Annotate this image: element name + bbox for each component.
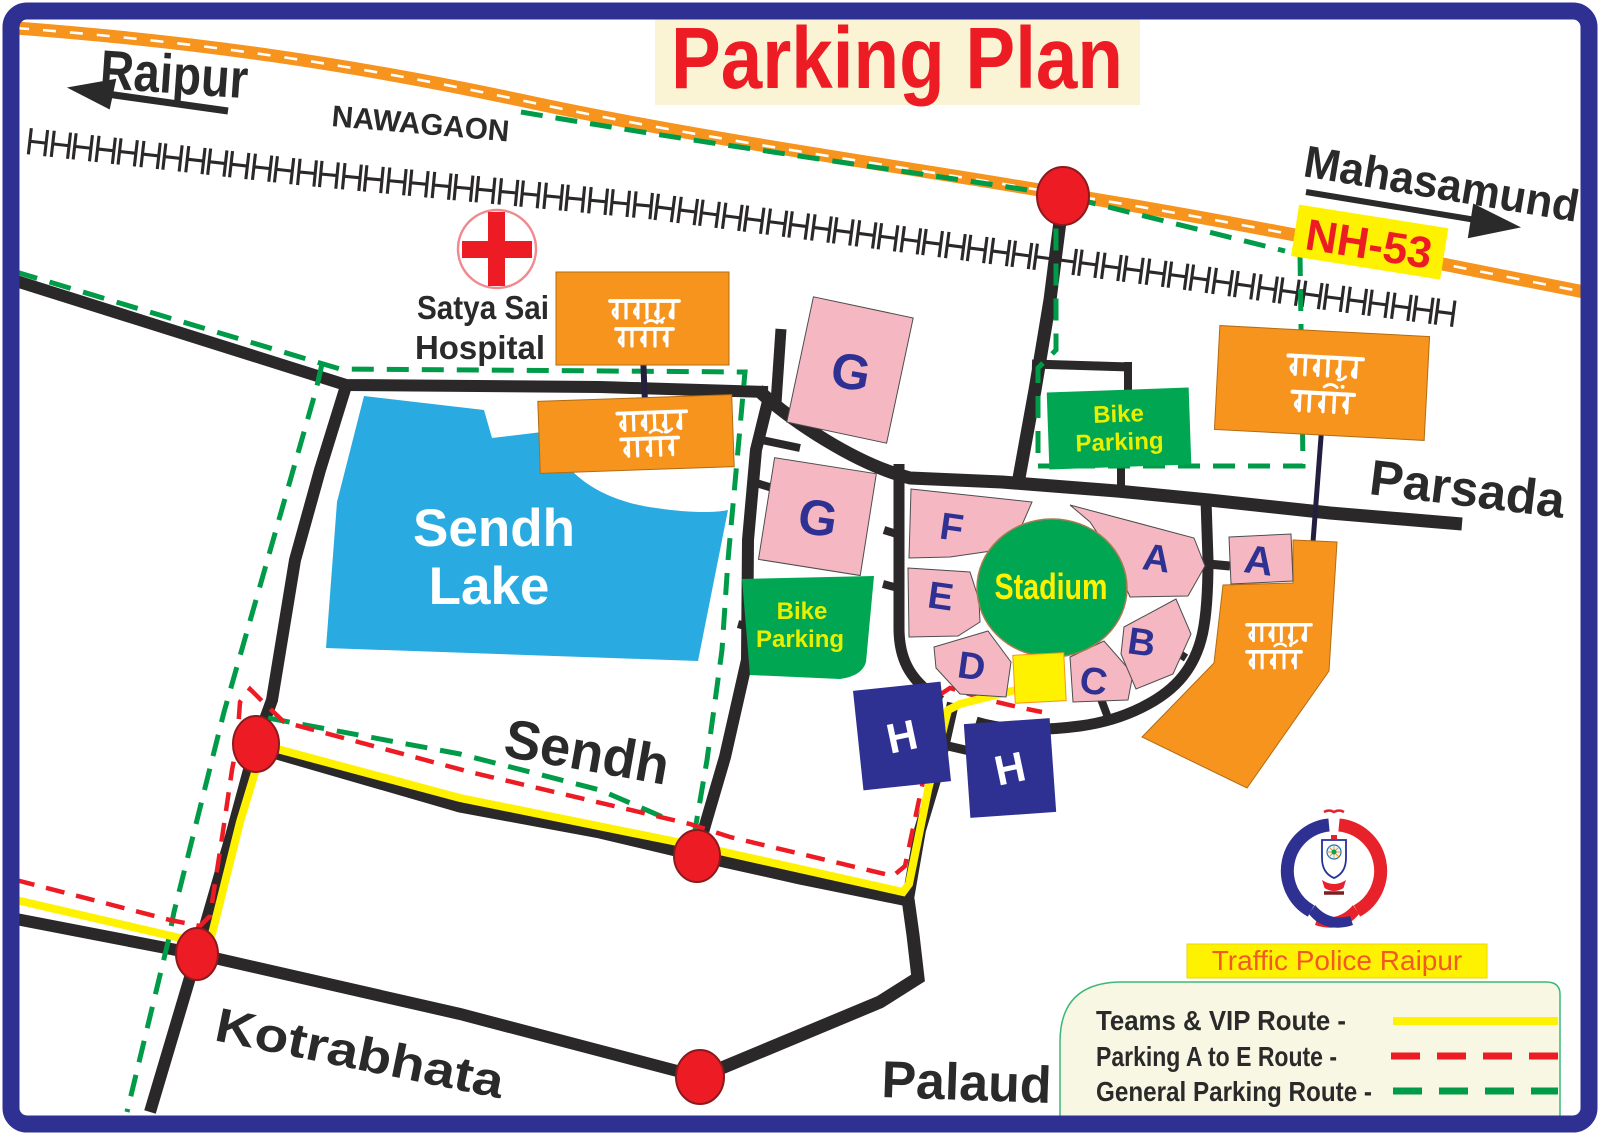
svg-text:Sendh: Sendh [413,499,575,558]
svg-text:Bike: Bike [1093,400,1145,429]
svg-text:D: D [955,644,988,689]
svg-text:Teams & VIP Route -: Teams & VIP Route - [1096,1005,1346,1036]
svg-text:Palaud: Palaud [881,1051,1053,1115]
svg-text:Lake: Lake [429,557,550,616]
svg-text:Hospital: Hospital [415,329,545,366]
svg-text:Bike: Bike [777,598,828,625]
svg-text:Parking: Parking [1075,427,1164,457]
svg-text:Stadium: Stadium [995,566,1108,607]
svg-text:B: B [1125,620,1158,665]
svg-text:Parking: Parking [756,626,844,653]
svg-text:C: C [1077,659,1110,704]
svg-text:A: A [1241,537,1276,585]
svg-text:Traffic Police Raipur: Traffic Police Raipur [1212,945,1463,976]
svg-text:General Parking Route -: General Parking Route - [1096,1076,1372,1107]
svg-text:A: A [1140,536,1173,581]
svg-text:Parking A to E Route -: Parking A to E Route - [1096,1041,1337,1072]
svg-text:Satya Sai: Satya Sai [417,289,549,326]
svg-text:Parking Plan: Parking Plan [671,10,1123,107]
